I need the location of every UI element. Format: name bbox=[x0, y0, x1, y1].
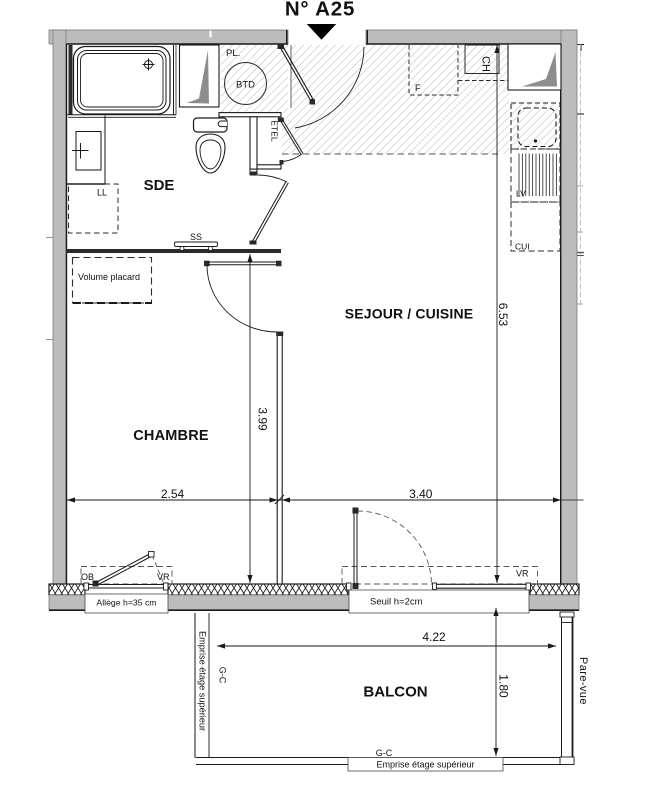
svg-text:CH: CH bbox=[480, 56, 492, 72]
svg-text:G-C: G-C bbox=[376, 748, 393, 758]
svg-text:Emprise étage supérieur: Emprise étage supérieur bbox=[197, 631, 207, 731]
svg-text:Allège h=35 cm: Allège h=35 cm bbox=[96, 598, 156, 608]
svg-text:LV: LV bbox=[516, 189, 526, 199]
svg-text:SS: SS bbox=[190, 232, 202, 242]
svg-text:6.53: 6.53 bbox=[496, 303, 510, 327]
svg-text:4.22: 4.22 bbox=[422, 630, 446, 644]
svg-text:G-C: G-C bbox=[218, 667, 228, 684]
svg-text:LL: LL bbox=[97, 188, 107, 198]
svg-text:SDE: SDE bbox=[144, 177, 175, 194]
svg-text:ETEL: ETEL bbox=[270, 120, 280, 142]
svg-text:N° A25: N° A25 bbox=[285, 0, 355, 21]
svg-text:CUI: CUI bbox=[515, 242, 530, 252]
svg-text:VR: VR bbox=[516, 569, 529, 579]
svg-text:OB: OB bbox=[81, 572, 94, 582]
svg-text:VR: VR bbox=[157, 572, 170, 582]
svg-text:1.80: 1.80 bbox=[497, 674, 511, 698]
svg-text:Volume placard: Volume placard bbox=[78, 272, 140, 282]
svg-text:SEJOUR / CUISINE: SEJOUR / CUISINE bbox=[345, 306, 473, 322]
svg-text:3.40: 3.40 bbox=[409, 487, 433, 501]
svg-text:BALCON: BALCON bbox=[363, 684, 427, 701]
svg-text:3.99: 3.99 bbox=[255, 407, 269, 431]
svg-text:Emprise étage supérieur: Emprise étage supérieur bbox=[376, 760, 474, 770]
svg-text:CHAMBRE: CHAMBRE bbox=[133, 428, 209, 444]
svg-text:F: F bbox=[415, 83, 421, 93]
svg-text:Pare-vue: Pare-vue bbox=[577, 657, 589, 705]
svg-text:PL.: PL. bbox=[226, 48, 240, 59]
svg-text:Seuil h=2cm: Seuil h=2cm bbox=[370, 597, 423, 608]
svg-text:BTD: BTD bbox=[236, 80, 255, 91]
svg-text:2.54: 2.54 bbox=[161, 487, 185, 501]
